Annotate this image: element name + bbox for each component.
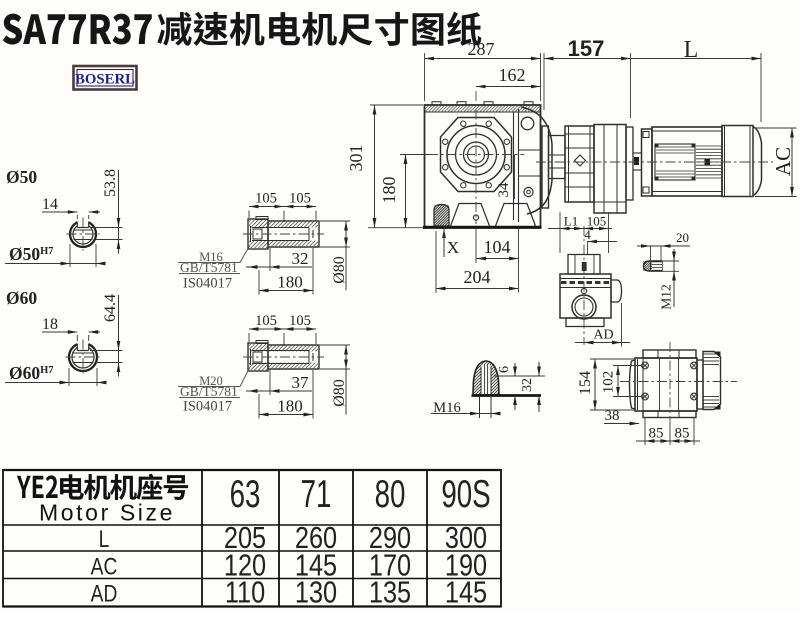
svg-text:64.4: 64.4 bbox=[102, 294, 119, 322]
svg-text:80: 80 bbox=[375, 474, 406, 516]
svg-text:204: 204 bbox=[464, 267, 491, 287]
svg-text:180: 180 bbox=[277, 397, 303, 416]
svg-text:90S: 90S bbox=[441, 474, 490, 516]
svg-text:85: 85 bbox=[649, 426, 664, 442]
svg-text:L1: L1 bbox=[564, 214, 578, 229]
svg-text:AC: AC bbox=[771, 147, 795, 176]
svg-text:85: 85 bbox=[675, 426, 690, 442]
svg-text:53.8: 53.8 bbox=[102, 169, 119, 197]
svg-text:105: 105 bbox=[255, 313, 277, 329]
svg-text:X: X bbox=[447, 238, 459, 257]
svg-text:71: 71 bbox=[301, 474, 332, 516]
svg-text:Ø60: Ø60 bbox=[6, 288, 37, 308]
svg-text:110: 110 bbox=[225, 575, 265, 609]
svg-text:145: 145 bbox=[445, 575, 487, 609]
svg-text:301: 301 bbox=[346, 145, 366, 172]
svg-text:L: L bbox=[99, 525, 110, 553]
svg-text:14: 14 bbox=[42, 196, 58, 213]
svg-text:IS04017: IS04017 bbox=[183, 276, 232, 292]
svg-text:IS04017: IS04017 bbox=[183, 399, 232, 415]
svg-text:180: 180 bbox=[379, 177, 399, 204]
svg-text:32: 32 bbox=[520, 378, 535, 392]
svg-text:162: 162 bbox=[499, 65, 526, 85]
svg-text:34: 34 bbox=[496, 182, 512, 198]
svg-text:135: 135 bbox=[369, 575, 411, 609]
svg-text:6: 6 bbox=[497, 366, 512, 373]
svg-text:38: 38 bbox=[605, 408, 620, 424]
svg-text:37: 37 bbox=[292, 373, 310, 392]
svg-text:180: 180 bbox=[277, 273, 303, 292]
svg-text:102: 102 bbox=[601, 371, 617, 394]
svg-text:M12: M12 bbox=[659, 284, 674, 310]
svg-text:157: 157 bbox=[568, 36, 605, 61]
svg-text:Motor Size: Motor Size bbox=[39, 500, 175, 526]
svg-text:105: 105 bbox=[289, 313, 311, 329]
svg-text:20: 20 bbox=[676, 230, 689, 245]
svg-text:Ø80: Ø80 bbox=[331, 256, 348, 284]
svg-text:AC: AC bbox=[91, 552, 118, 580]
svg-text:Ø50: Ø50 bbox=[6, 167, 37, 187]
svg-text:4: 4 bbox=[584, 227, 591, 242]
svg-text:63: 63 bbox=[230, 474, 261, 516]
svg-text:154: 154 bbox=[577, 371, 594, 395]
svg-text:104: 104 bbox=[484, 237, 511, 257]
svg-text:32: 32 bbox=[292, 249, 309, 268]
svg-text:AD: AD bbox=[593, 328, 613, 343]
svg-text:105: 105 bbox=[255, 191, 277, 207]
svg-text:BOSERL: BOSERL bbox=[75, 72, 135, 88]
svg-text:L: L bbox=[684, 37, 699, 63]
svg-text:105: 105 bbox=[289, 191, 311, 207]
svg-text:Ø80: Ø80 bbox=[331, 379, 348, 407]
svg-text:130: 130 bbox=[295, 575, 337, 609]
svg-text:AD: AD bbox=[91, 579, 118, 607]
svg-text:287: 287 bbox=[468, 39, 495, 59]
svg-text:18: 18 bbox=[42, 316, 58, 333]
